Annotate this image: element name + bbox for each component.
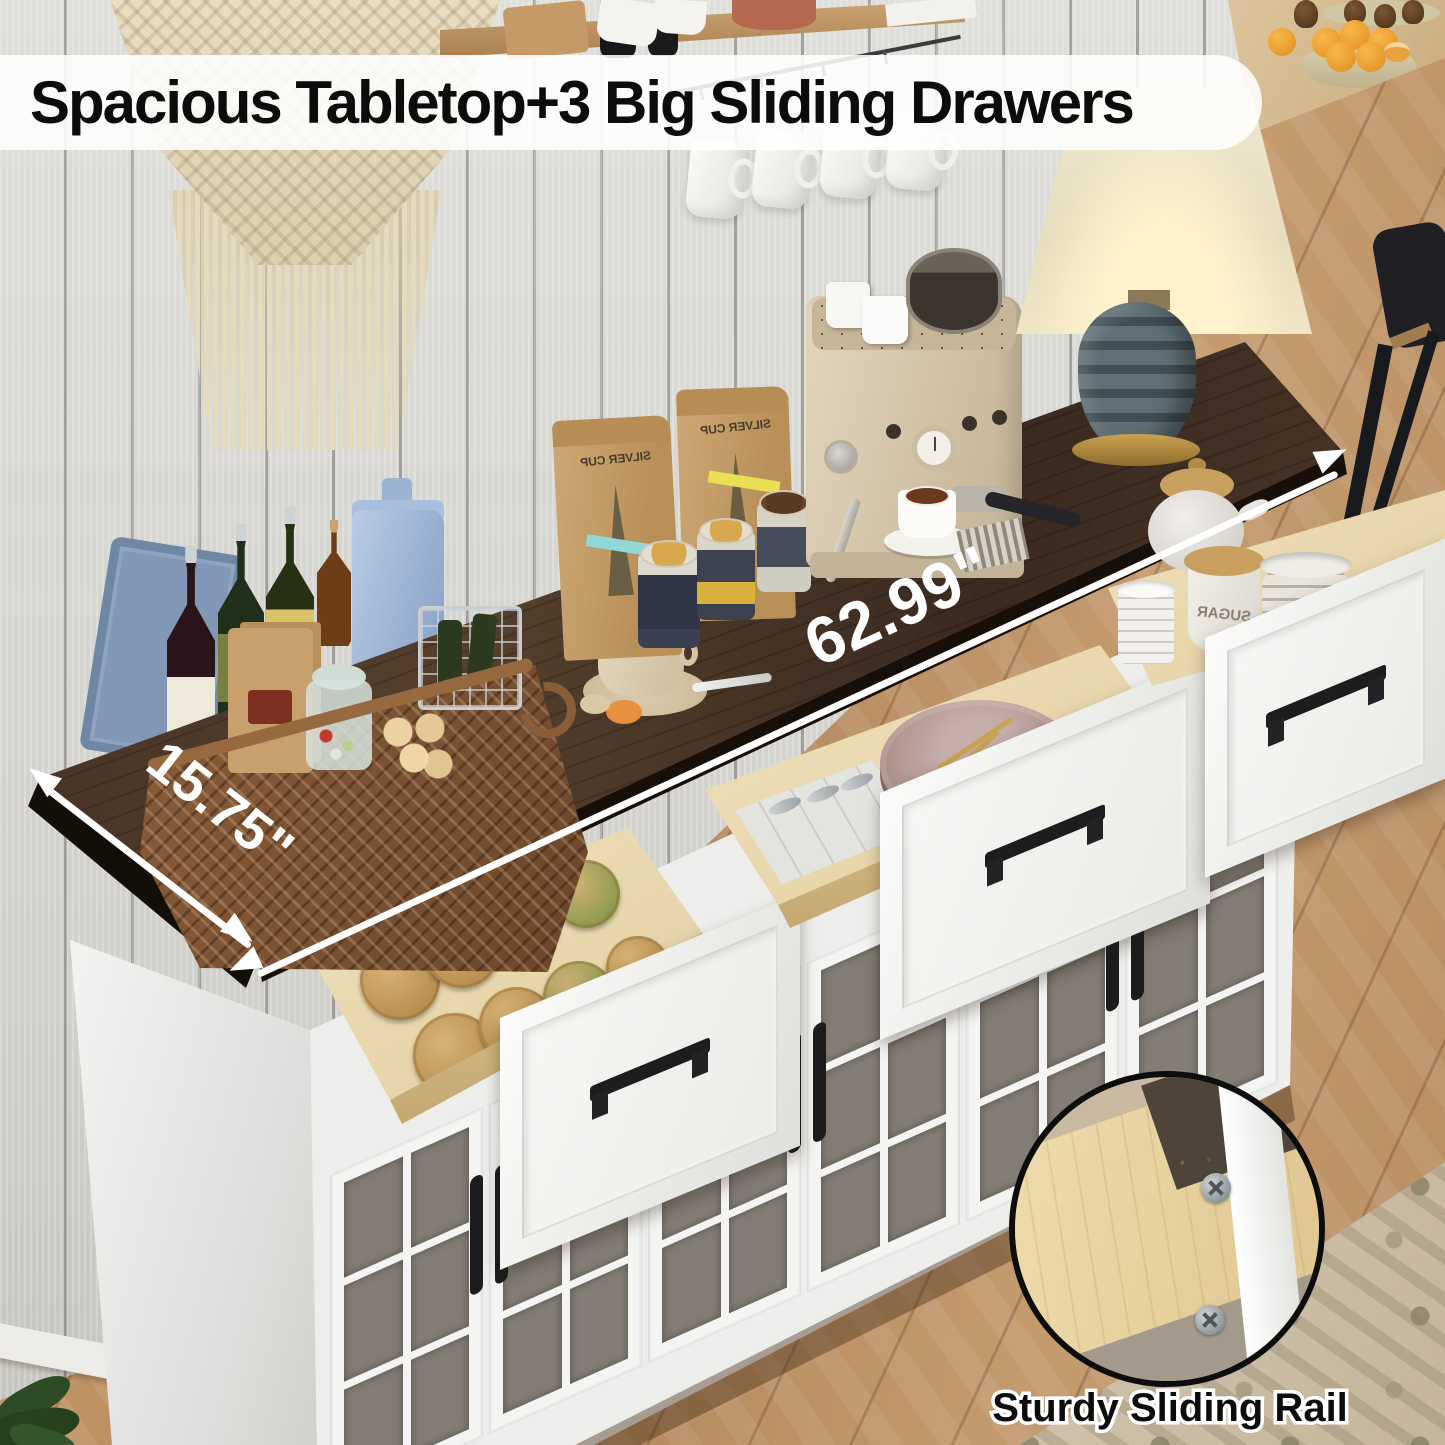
orange bbox=[1268, 28, 1296, 56]
glass-pane bbox=[344, 1260, 403, 1381]
glass-pane bbox=[821, 944, 880, 1065]
headline-text: Spacious Tabletop+3 Big Sliding Drawers bbox=[30, 68, 1133, 137]
espresso-machine-cup bbox=[862, 296, 908, 344]
machine-button bbox=[992, 410, 1007, 425]
door-handle bbox=[813, 1020, 826, 1144]
brass-lamp-foot bbox=[1072, 434, 1200, 466]
glass-pane bbox=[570, 1263, 629, 1384]
glass-pane bbox=[821, 1048, 880, 1169]
product-photo-scene: SUGAR SILVER CUP SILVER CUP bbox=[0, 0, 1445, 1445]
orange bbox=[1326, 42, 1356, 72]
espresso-cup-stack bbox=[1118, 588, 1174, 664]
rail-screw bbox=[1195, 1305, 1225, 1335]
door-handle bbox=[470, 1173, 483, 1297]
kraft-bag-label bbox=[248, 690, 292, 724]
glass-pane bbox=[411, 1334, 470, 1445]
orange-slice bbox=[1384, 42, 1410, 62]
pressure-gauge bbox=[912, 426, 956, 470]
glass-pane bbox=[411, 1230, 470, 1351]
glass-pane bbox=[344, 1157, 403, 1278]
hanging-mug bbox=[653, 0, 707, 36]
machine-button bbox=[886, 424, 901, 439]
bowl-stack-top bbox=[1260, 552, 1352, 578]
macaron bbox=[580, 694, 610, 714]
wood-block bbox=[503, 0, 590, 60]
glass-pane bbox=[888, 1018, 947, 1139]
glass-pane bbox=[821, 1151, 880, 1272]
glass-pane bbox=[503, 1293, 562, 1414]
pinecone bbox=[1294, 0, 1318, 28]
cookie-tin-lid bbox=[699, 518, 753, 544]
hanging-mug bbox=[595, 0, 661, 48]
machine-button bbox=[962, 416, 977, 431]
glass-pane bbox=[662, 1222, 721, 1343]
glass-pane bbox=[980, 977, 1039, 1098]
ribbed-lamp-base bbox=[1078, 302, 1196, 454]
glass-pane bbox=[1206, 876, 1265, 997]
hanging-mug bbox=[685, 138, 748, 221]
sugar-jar-lid bbox=[1184, 546, 1264, 576]
pinecone bbox=[1374, 4, 1396, 28]
glass-pane bbox=[888, 1121, 947, 1242]
bean-hopper bbox=[906, 248, 1002, 334]
egg-basket bbox=[372, 700, 458, 800]
orange bbox=[1356, 42, 1386, 72]
clay-pot bbox=[732, 0, 816, 30]
glass-pane bbox=[411, 1127, 470, 1248]
macaron bbox=[606, 700, 642, 724]
sliding-rail-zoom-inset bbox=[1009, 1071, 1325, 1387]
espresso-coffee bbox=[904, 486, 950, 506]
inset-caption: Sturdy Sliding Rail bbox=[980, 1386, 1360, 1431]
cookie-tin-lid bbox=[640, 540, 698, 568]
steam-knob bbox=[824, 440, 858, 474]
glass-pane bbox=[729, 1192, 788, 1313]
rail-screw bbox=[1201, 1173, 1231, 1203]
espresso-cup-stack-top bbox=[1116, 580, 1176, 598]
pinecone bbox=[1402, 0, 1424, 24]
headline-banner: Spacious Tabletop+3 Big Sliding Drawers bbox=[0, 55, 1262, 150]
coffee-tin-open-top bbox=[759, 490, 809, 516]
